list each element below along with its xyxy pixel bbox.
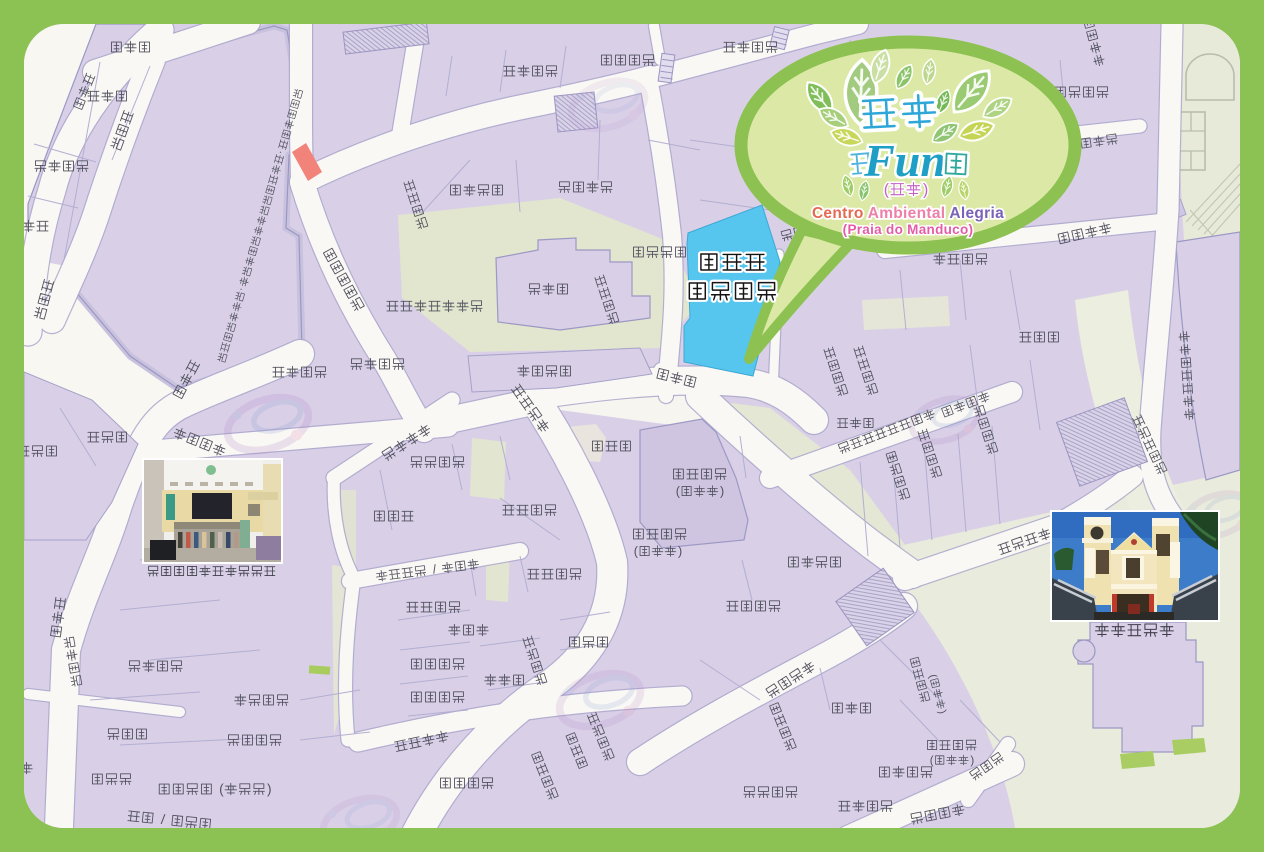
svg-text:(Praia do Manduco): (Praia do Manduco) — [843, 222, 974, 237]
svg-text:Fun: Fun — [863, 135, 946, 186]
svg-text:(: ( — [884, 181, 890, 198]
svg-text:(: ( — [930, 754, 934, 767]
svg-text:): ) — [970, 754, 974, 767]
svg-text:(: ( — [219, 782, 224, 797]
svg-text:): ) — [678, 544, 682, 558]
svg-text:): ) — [267, 782, 272, 797]
svg-text:): ) — [923, 181, 928, 198]
svg-text:Centro Ambiental Alegria: Centro Ambiental Alegria — [812, 205, 1004, 222]
svg-text:): ) — [720, 484, 724, 498]
